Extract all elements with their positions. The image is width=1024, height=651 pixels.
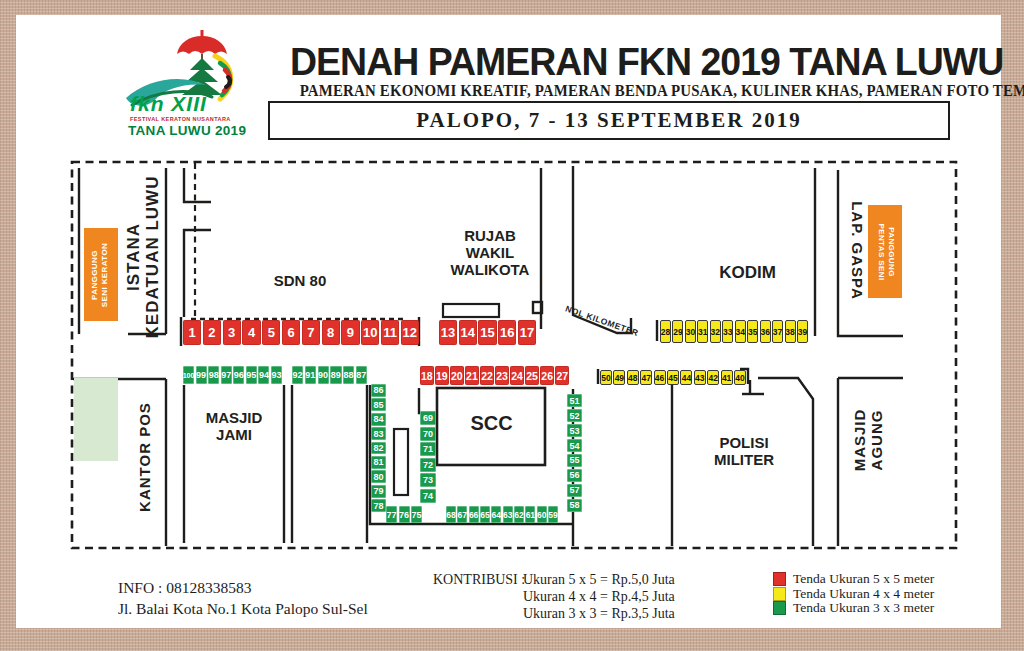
info-block: INFO : 08128338583 Jl. Balai Kota No.1 K… [118, 577, 368, 619]
booth-row-scc-top: 18192021222324252627 [420, 366, 569, 385]
booth-row-rujab: 1314151617 [439, 320, 536, 345]
booth-52: 52 [567, 409, 582, 422]
booth-row-bottom-left: 777675 [386, 506, 422, 523]
legend-swatch-red [773, 572, 786, 586]
legend-label-5x5: Tenda Ukuran 5 x 5 meter [793, 572, 934, 585]
booth-72: 72 [420, 458, 436, 472]
booth-30: 30 [685, 320, 696, 343]
booth-11: 11 [381, 320, 399, 345]
booth-24: 24 [510, 366, 524, 385]
booth-4: 4 [242, 320, 260, 345]
booth-strip-inner: 697071727374 [420, 411, 436, 503]
booth-93: 93 [271, 366, 282, 384]
booth-83: 83 [371, 427, 386, 440]
booth-41: 41 [721, 370, 733, 385]
rujab-label: RUJAB WAKIL WALIKOTA [440, 228, 540, 279]
booth-60: 60 [537, 506, 547, 523]
booth-46: 46 [654, 370, 666, 385]
booth-47: 47 [640, 370, 652, 385]
booth-43: 43 [694, 370, 706, 385]
booth-63: 63 [503, 506, 513, 523]
lap-gaspa-label: LAP. GASPA [848, 198, 865, 303]
kontribusi-item-3x3: Ukuran 3 x 3 = Rp.3,5 Juta [523, 605, 675, 622]
booth-34: 34 [735, 320, 746, 343]
booth-61: 61 [525, 506, 535, 523]
booth-65: 65 [480, 506, 490, 523]
booth-92: 92 [292, 366, 303, 384]
booth-66: 66 [469, 506, 479, 523]
booth-31: 31 [697, 320, 708, 343]
booth-17: 17 [518, 320, 536, 345]
booth-39: 39 [797, 320, 808, 343]
booth-64: 64 [491, 506, 501, 523]
kontribusi-label: KONTRIBUSI : [433, 571, 525, 588]
booth-54: 54 [567, 439, 582, 452]
panggung-pentas-seni-label: PANGGUNG PENTAS SENI [874, 208, 896, 296]
booth-19: 19 [435, 366, 449, 385]
booth-25: 25 [525, 366, 539, 385]
kontribusi-items: Ukuran 5 x 5 = Rp.5,0 Juta Ukuran 4 x 4 … [523, 571, 675, 622]
booth-62: 62 [514, 506, 524, 523]
booth-88: 88 [343, 366, 354, 384]
booth-51: 51 [567, 394, 582, 407]
booth-15: 15 [478, 320, 496, 345]
legend-swatch-green [773, 601, 786, 615]
booth-3: 3 [223, 320, 241, 345]
booth-96: 96 [233, 366, 244, 384]
booth-18: 18 [420, 366, 434, 385]
booth-21: 21 [465, 366, 479, 385]
booth-98: 98 [208, 366, 219, 384]
booth-29: 29 [672, 320, 683, 343]
booth-strip-right: 5152535455565758 [567, 394, 582, 512]
booth-23: 23 [495, 366, 509, 385]
masjid-agung-label: MASJID AGUNG [852, 395, 888, 485]
booth-28: 28 [660, 320, 671, 343]
legend-swatch-yellow [773, 587, 786, 601]
booth-16: 16 [498, 320, 516, 345]
booth-71: 71 [420, 442, 436, 456]
booth-68: 68 [446, 506, 456, 523]
booth-57: 57 [567, 484, 582, 497]
booth-6: 6 [282, 320, 300, 345]
legend-row-3x3: Tenda Ukuran 3 x 3 meter [773, 601, 934, 615]
booth-59: 59 [548, 506, 558, 523]
booth-row-kodim: 282930313233343536373839 [660, 320, 808, 343]
booth-89: 89 [330, 366, 341, 384]
panggung-seni-keraton-label: PANGGUNG SENI KERATON [90, 231, 112, 319]
booth-32: 32 [710, 320, 721, 343]
booth-10: 10 [361, 320, 379, 345]
booth-14: 14 [459, 320, 477, 345]
booth-20: 20 [450, 366, 464, 385]
booth-56: 56 [567, 469, 582, 482]
booth-33: 33 [722, 320, 733, 343]
booth-75: 75 [411, 506, 422, 523]
poster: fkn XIII FESTIVAL KERATON NUSANTARA TANA… [0, 0, 1024, 651]
legend: Tenda Ukuran 5 x 5 meter Tenda Ukuran 4 … [773, 572, 934, 616]
booth-9: 9 [341, 320, 359, 345]
booth-8: 8 [322, 320, 340, 345]
booth-80: 80 [371, 470, 386, 483]
booth-35: 35 [747, 320, 758, 343]
booth-55: 55 [567, 454, 582, 467]
booth-87: 87 [356, 366, 367, 384]
booth-row-polisi-militer: 5049484746454443424140 [600, 370, 746, 385]
booth-81: 81 [371, 456, 386, 469]
scc-label: SCC [460, 412, 523, 435]
kantor-pos-label: KANTOR POS [137, 397, 155, 517]
polisi-militer-label: POLISI MILITER [694, 435, 794, 469]
legend-row-4x4: Tenda Ukuran 4 x 4 meter [773, 587, 934, 601]
booth-76: 76 [399, 506, 410, 523]
booth-42: 42 [707, 370, 719, 385]
kontribusi-item-5x5: Ukuran 5 x 5 = Rp.5,0 Juta [523, 571, 675, 588]
booth-37: 37 [772, 320, 783, 343]
booth-86: 86 [371, 384, 386, 397]
istana-kedatuan-luwu-label: ISTANA KEDATUAN LUWU [124, 172, 166, 342]
kantor-pos-block [74, 378, 118, 461]
booth-48: 48 [627, 370, 639, 385]
info-address: Jl. Balai Kota No.1 Kota Palopo Sul-Sel [118, 598, 368, 619]
booth-27: 27 [555, 366, 569, 385]
booth-67: 67 [457, 506, 467, 523]
booth-38: 38 [785, 320, 796, 343]
booth-26: 26 [540, 366, 554, 385]
booth-82: 82 [371, 442, 386, 455]
booth-91: 91 [305, 366, 316, 384]
masjid-jami-label: MASJID JAMI [194, 410, 274, 444]
booth-53: 53 [567, 424, 582, 437]
booth-strip-left: 868584838281807978 [371, 384, 386, 512]
booth-45: 45 [667, 370, 679, 385]
legend-row-5x5: Tenda Ukuran 5 x 5 meter [773, 572, 934, 586]
kontribusi-item-4x4: Ukuran 4 x 4 = Rp.4,5 Juta [523, 588, 675, 605]
booth-44: 44 [680, 370, 692, 385]
booth-40: 40 [734, 370, 746, 385]
legend-label-3x3: Tenda Ukuran 3 x 3 meter [793, 601, 934, 614]
kodim-label: KODIM [700, 263, 795, 282]
booth-49: 49 [613, 370, 625, 385]
legend-label-4x4: Tenda Ukuran 4 x 4 meter [793, 587, 934, 600]
booth-1: 1 [183, 320, 201, 345]
panggung-pentas-seni-stage: PANGGUNG PENTAS SENI [868, 205, 902, 298]
sdn80-label: SDN 80 [240, 273, 360, 290]
booth-36: 36 [760, 320, 771, 343]
booth-77: 77 [386, 506, 397, 523]
booth-5: 5 [262, 320, 280, 345]
booth-78: 78 [371, 499, 386, 512]
booth-row-masjid-jami: 10099989796959493 [183, 366, 282, 384]
booth-97: 97 [221, 366, 232, 384]
booth-84: 84 [371, 413, 386, 426]
booth-69: 69 [420, 411, 436, 425]
booth-13: 13 [439, 320, 457, 345]
booth-58: 58 [567, 499, 582, 512]
booth-90: 90 [318, 366, 329, 384]
booth-row-lot2: 929190898887 [292, 366, 367, 384]
info-phone: INFO : 08128338583 [118, 577, 368, 598]
booth-85: 85 [371, 398, 386, 411]
booth-7: 7 [302, 320, 320, 345]
booth-74: 74 [420, 489, 436, 503]
panggung-seni-keraton-stage: PANGGUNG SENI KERATON [84, 228, 118, 321]
booth-73: 73 [420, 473, 436, 487]
booth-94: 94 [258, 366, 269, 384]
booth-row-bottom-right: 68676665646362616059 [446, 506, 558, 523]
booth-79: 79 [371, 485, 386, 498]
booth-22: 22 [480, 366, 494, 385]
booth-2: 2 [203, 320, 221, 345]
booth-12: 12 [401, 320, 419, 345]
booth-50: 50 [600, 370, 612, 385]
booth-100: 100 [183, 366, 194, 384]
booth-row-sdn80: 123456789101112 [183, 320, 419, 345]
booth-70: 70 [420, 427, 436, 441]
booth-95: 95 [246, 366, 257, 384]
booth-99: 99 [196, 366, 207, 384]
